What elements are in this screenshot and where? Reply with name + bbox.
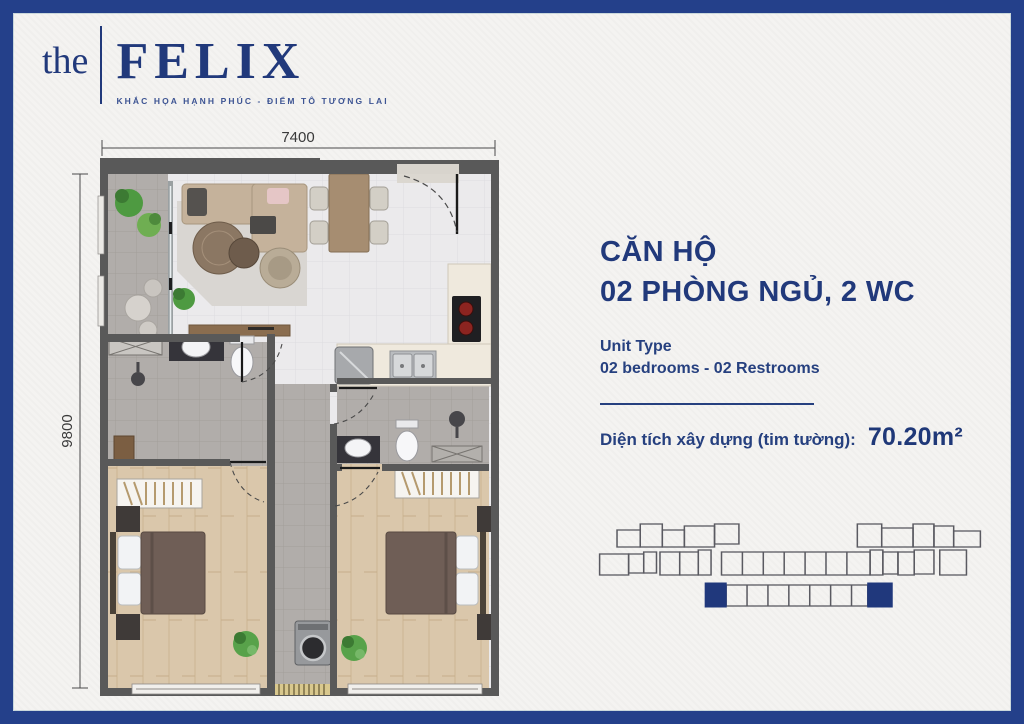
- floor-plan: 7400 9800: [52, 126, 514, 710]
- side-table: [229, 238, 259, 268]
- logo-prefix: the: [42, 42, 88, 106]
- keyplan-unit: [680, 552, 699, 575]
- unit-type-value: 02 bedrooms - 02 Restrooms: [600, 358, 1000, 380]
- area-value: 70.20m²: [868, 423, 963, 452]
- unit-info-panel: CĂN HỘ 02 PHÒNG NGỦ, 2 WC Unit Type 02 b…: [600, 232, 1000, 452]
- brand-logo: the FELIX KHẮC HỌA HẠNH PHÚC - ĐIỂM TÔ T…: [42, 26, 389, 106]
- keyplan-unit: [883, 552, 898, 574]
- plant-leaf: [247, 645, 257, 655]
- keyplan-dividers: [747, 585, 851, 606]
- nightstand: [116, 506, 140, 532]
- plant-leaf: [342, 636, 354, 648]
- keyplan-buildings: [600, 524, 981, 606]
- keyplan-unit: [684, 526, 714, 547]
- headboard: [110, 532, 116, 614]
- entry-opening: [397, 164, 459, 174]
- keyplan-unit: [870, 550, 883, 575]
- keyplan-unit: [934, 526, 954, 547]
- burner: [459, 302, 473, 316]
- unit-type-label: Unit Type: [600, 336, 1000, 358]
- wall-corridor-west-upper: [267, 334, 275, 466]
- plant-leaf: [355, 649, 365, 659]
- washer-door: [301, 636, 325, 660]
- logo-text-block: FELIX KHẮC HỌA HẠNH PHÚC - ĐIỂM TÔ TƯƠNG…: [116, 36, 388, 106]
- wall-bedroom2-north: [382, 464, 489, 471]
- floor-plan-drawing: 7400 9800: [52, 126, 514, 710]
- area-row: Diện tích xây dựng (tim tường): 70.20m²: [600, 423, 1000, 452]
- dining-table: [329, 174, 369, 252]
- dimension-height: 9800: [59, 174, 88, 688]
- keyplan-dividers: [742, 552, 846, 575]
- plant-leaf: [149, 213, 161, 225]
- keyplan-unit: [898, 552, 914, 575]
- keyplan-unit: [882, 528, 913, 547]
- pouf-table: [125, 295, 151, 321]
- unit-type-block: Unit Type 02 bedrooms - 02 Restrooms: [600, 336, 1000, 381]
- keyplan-unit: [662, 530, 684, 547]
- plant-leaf: [173, 288, 185, 300]
- keyplan-unit: [644, 552, 657, 573]
- divider-line: [600, 403, 814, 405]
- burner: [459, 321, 473, 335]
- toilet: [396, 431, 418, 461]
- toilet-tank: [396, 420, 418, 428]
- pillow: [456, 536, 478, 569]
- dimension-width-label: 7400: [281, 129, 314, 146]
- keyplan-unit: [954, 531, 981, 547]
- plant-leaf: [234, 632, 246, 644]
- keyplan-unit: [600, 554, 629, 575]
- highlighted-unit: [705, 583, 726, 607]
- keyplan-unit: [913, 524, 934, 547]
- dimension-width: 7400: [102, 129, 495, 156]
- dining-chair: [370, 187, 388, 210]
- wall-corridor-west-lower: [267, 466, 275, 688]
- wall-corridor-east-stub: [330, 384, 337, 392]
- logo-divider: [100, 26, 102, 104]
- pillow: [456, 573, 478, 605]
- logo-name: FELIX: [116, 36, 388, 88]
- keyplan-unit: [660, 552, 680, 575]
- logo-tagline: KHẮC HỌA HẠNH PHÚC - ĐIỂM TÔ TƯƠNG LAI: [116, 96, 388, 106]
- louver-vent: [275, 684, 330, 695]
- sofa-ottoman: [250, 216, 276, 234]
- sofa-pillow-pink: [267, 188, 289, 204]
- wall-top-thick: [100, 158, 320, 174]
- shower-head: [131, 372, 145, 386]
- keyplan-unit: [857, 524, 881, 547]
- dimension-height-label: 9800: [59, 414, 76, 447]
- wall-corridor-east: [330, 424, 337, 688]
- wall-right: [491, 160, 499, 696]
- keyplan-unit: [617, 530, 640, 547]
- keyplan-unit: [698, 550, 711, 575]
- keyplan-unit: [629, 554, 644, 573]
- sofa-cushion-dark: [187, 188, 207, 216]
- keyplan-drawing: [588, 512, 992, 612]
- brochure-page: the FELIX KHẮC HỌA HẠNH PHÚC - ĐIỂM TÔ T…: [0, 0, 1024, 724]
- laundry: [295, 621, 331, 665]
- site-keyplan: [588, 512, 992, 612]
- washer-panel: [298, 624, 328, 630]
- unit-title-line2: 02 PHÒNG NGỦ, 2 WC: [600, 272, 1000, 312]
- door-handle: [169, 278, 172, 290]
- window: [98, 196, 104, 254]
- sliding-glass-door: [168, 181, 173, 341]
- dining-chair: [370, 221, 388, 244]
- keyplan-block: [722, 552, 871, 575]
- headboard: [480, 532, 486, 614]
- wardrobe: [117, 479, 202, 508]
- unit-title-line1: CĂN HỘ: [600, 232, 1000, 272]
- plant-leaf: [115, 189, 129, 203]
- area-label: Diện tích xây dựng (tim tường):: [600, 430, 856, 450]
- washbasin: [345, 439, 371, 457]
- window: [98, 276, 104, 326]
- nightstand: [116, 614, 140, 640]
- highlighted-unit: [868, 583, 892, 607]
- wall-bath2-north: [337, 378, 491, 384]
- pillow: [118, 573, 141, 605]
- dining-chair: [310, 221, 328, 244]
- keyplan-unit: [715, 524, 739, 544]
- sink-drain: [421, 364, 425, 368]
- wardrobe: [395, 469, 479, 498]
- keyplan-unit: [914, 550, 934, 574]
- console-decor: [248, 327, 274, 330]
- wall-bath1-north: [108, 334, 240, 342]
- armchair-seat: [268, 256, 292, 280]
- shower-head: [449, 411, 465, 427]
- keyplan-unit: [640, 524, 662, 547]
- pillow: [118, 536, 141, 569]
- sink-drain: [400, 364, 404, 368]
- dining-chair: [310, 187, 328, 210]
- pouf-table: [144, 279, 162, 297]
- entry-threshold: [397, 174, 459, 183]
- door-handle: [169, 222, 172, 234]
- keyplan-unit: [940, 550, 967, 575]
- wall-bedroom1-north: [108, 459, 230, 466]
